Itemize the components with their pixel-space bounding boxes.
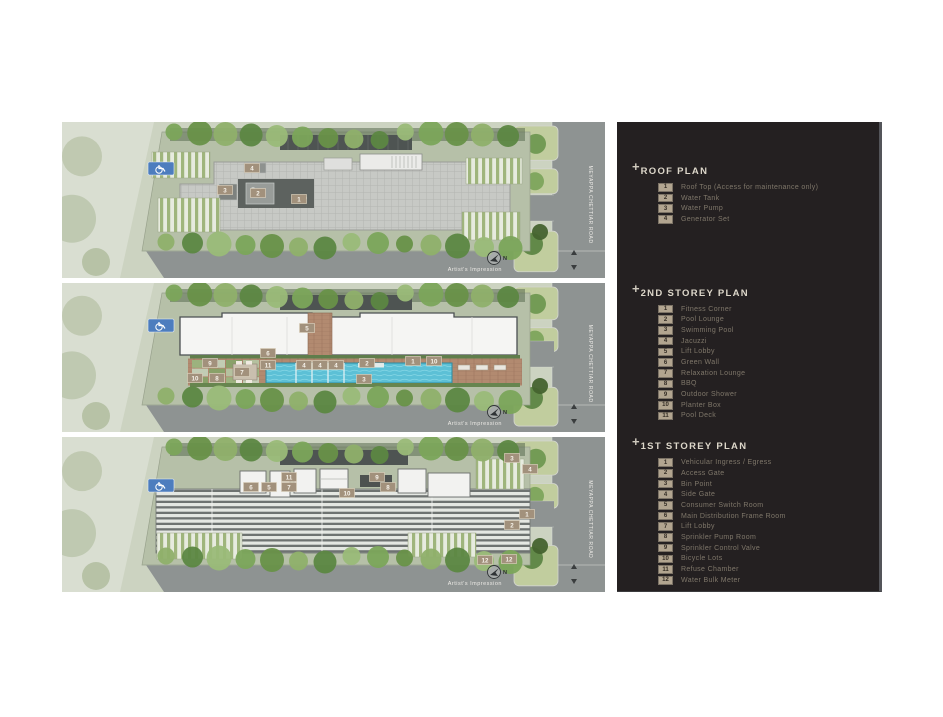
legend-item-number: 3 bbox=[658, 204, 673, 213]
second-storey-plan-figure: 56119108744423110MEYAPPA CHETTIAR ROADNA… bbox=[62, 283, 605, 432]
plan-marker-7: 7 bbox=[235, 368, 250, 377]
legend-item: 1Fitness Corner bbox=[658, 304, 871, 315]
legend-item-label: Roof Top (Access for maintenance only) bbox=[681, 184, 818, 191]
plan-marker-4: 4 bbox=[523, 465, 538, 474]
compass-north-label: N bbox=[503, 570, 507, 576]
legend-item-label: Planter Box bbox=[681, 402, 721, 409]
plan-marker-3: 3 bbox=[218, 186, 233, 195]
plan-marker-12: 12 bbox=[502, 555, 517, 564]
legend-item-label: Bin Point bbox=[681, 481, 712, 488]
legend-section-0: +ROOF PLAN1Roof Top (Access for maintena… bbox=[645, 166, 871, 225]
svg-text:11: 11 bbox=[265, 362, 272, 369]
legend-item: 4Side Gate bbox=[658, 489, 871, 500]
legend-item-number: 4 bbox=[658, 215, 673, 224]
plan-marker-4: 4 bbox=[297, 361, 312, 370]
roof-plan-figure: 4321MEYAPPA CHETTIAR ROADNArtist's Impre… bbox=[62, 122, 605, 278]
legend-item-number: 2 bbox=[658, 469, 673, 478]
legend-item-label: Generator Set bbox=[681, 216, 730, 223]
legend-item-number: 8 bbox=[658, 533, 673, 542]
plan-marker-10: 10 bbox=[427, 357, 442, 366]
artists-impression-label: Artist's Impression bbox=[448, 421, 502, 427]
svg-text:7: 7 bbox=[287, 484, 291, 491]
legend-item-number: 1 bbox=[658, 305, 673, 314]
legend-item-label: Pool Lounge bbox=[681, 316, 724, 323]
legend-item-label: Consumer Switch Room bbox=[681, 502, 763, 509]
legend-item-label: Sprinkler Control Valve bbox=[681, 545, 760, 552]
legend-section-2: +1ST STOREY PLAN1Vehicular Ingress / Egr… bbox=[645, 441, 871, 585]
svg-text:1: 1 bbox=[411, 358, 415, 365]
plus-icon: + bbox=[632, 162, 640, 171]
legend-item: 5Lift Lobby bbox=[658, 347, 871, 358]
legend-item: 7Lift Lobby bbox=[658, 521, 871, 532]
legend-item-label: Swimming Pool bbox=[681, 327, 734, 334]
legend-item-number: 3 bbox=[658, 480, 673, 489]
accessible-parking-icon bbox=[148, 319, 174, 332]
legend-item: 9Outdoor Shower bbox=[658, 389, 871, 400]
legend-item-label: Refuse Chamber bbox=[681, 566, 739, 573]
legend-item-label: Pool Deck bbox=[681, 412, 716, 419]
road-label: MEYAPPA CHETTIAR ROAD bbox=[587, 480, 593, 558]
legend-item-number: 4 bbox=[658, 337, 673, 346]
plan-marker-8: 8 bbox=[210, 374, 225, 383]
plan-marker-9: 9 bbox=[370, 473, 385, 482]
svg-text:3: 3 bbox=[223, 187, 227, 194]
accessible-parking-icon bbox=[148, 162, 174, 175]
legend-item-number: 11 bbox=[658, 412, 673, 421]
plan-marker-12: 12 bbox=[478, 556, 493, 565]
legend-item-label: Water Bulk Meter bbox=[681, 577, 740, 584]
svg-text:1: 1 bbox=[297, 196, 301, 203]
legend-item-number: 9 bbox=[658, 544, 673, 553]
svg-text:1: 1 bbox=[525, 511, 529, 518]
svg-text:2: 2 bbox=[365, 360, 369, 367]
plan-marker-3: 3 bbox=[357, 375, 372, 384]
legend-item-label: Water Tank bbox=[681, 195, 720, 202]
plan-marker-11: 11 bbox=[261, 361, 276, 370]
svg-text:10: 10 bbox=[192, 375, 199, 382]
legend-item-number: 10 bbox=[658, 555, 673, 564]
svg-text:3: 3 bbox=[510, 455, 514, 462]
legend-item-number: 9 bbox=[658, 390, 673, 399]
svg-text:8: 8 bbox=[215, 375, 219, 382]
legend-section-heading: +ROOF PLAN bbox=[645, 166, 871, 177]
legend-item-number: 3 bbox=[658, 326, 673, 335]
svg-text:7: 7 bbox=[240, 369, 244, 376]
legend-item-label: Lift Lobby bbox=[681, 348, 715, 355]
first-storey-plan-figure: 34116579810121212MEYAPPA CHETTIAR ROADNA… bbox=[62, 437, 605, 592]
legend-item-label: Green Wall bbox=[681, 359, 719, 366]
plan-marker-1: 1 bbox=[520, 510, 535, 519]
legend-item-label: Relaxation Lounge bbox=[681, 370, 745, 377]
svg-text:8: 8 bbox=[386, 484, 390, 491]
legend-item-number: 2 bbox=[658, 194, 673, 203]
plan-marker-6: 6 bbox=[244, 483, 259, 492]
svg-text:12: 12 bbox=[506, 556, 513, 563]
plan-marker-7: 7 bbox=[282, 483, 297, 492]
legend-item-label: Side Gate bbox=[681, 491, 715, 498]
legend-section-1: +2ND STOREY PLAN1Fitness Corner2Pool Lou… bbox=[645, 288, 871, 422]
legend-item: 10Bicycle Lots bbox=[658, 554, 871, 565]
svg-text:6: 6 bbox=[266, 350, 270, 357]
plan-marker-8: 8 bbox=[381, 483, 396, 492]
legend-item: 2Water Tank bbox=[658, 193, 871, 204]
legend-item: 9Sprinkler Control Valve bbox=[658, 543, 871, 554]
legend-item-label: Main Distribution Frame Room bbox=[681, 513, 786, 520]
legend-item-label: Water Pump bbox=[681, 205, 723, 212]
legend-item: 7Relaxation Lounge bbox=[658, 368, 871, 379]
legend-item: 5Consumer Switch Room bbox=[658, 500, 871, 511]
legend-item-number: 8 bbox=[658, 380, 673, 389]
legend-section-heading: +2ND STOREY PLAN bbox=[645, 288, 871, 299]
legend-item: 8BBQ bbox=[658, 379, 871, 390]
legend-item-number: 7 bbox=[658, 369, 673, 378]
legend-item: 2Pool Lounge bbox=[658, 314, 871, 325]
legend-item-label: Vehicular Ingress / Egress bbox=[681, 459, 771, 466]
svg-text:11: 11 bbox=[286, 474, 293, 481]
legend-item-label: Sprinkler Pump Room bbox=[681, 534, 756, 541]
legend-item-number: 1 bbox=[658, 183, 673, 192]
legend-item: 6Green Wall bbox=[658, 357, 871, 368]
compass-north-label: N bbox=[503, 410, 507, 416]
page-canvas: 4321MEYAPPA CHETTIAR ROADNArtist's Impre… bbox=[0, 0, 943, 717]
svg-text:10: 10 bbox=[344, 490, 351, 497]
compass-north-label: N bbox=[503, 256, 507, 262]
legend-item-label: Fitness Corner bbox=[681, 306, 732, 313]
plan-marker-6: 6 bbox=[261, 349, 276, 358]
svg-text:6: 6 bbox=[249, 484, 253, 491]
legend-item-number: 10 bbox=[658, 401, 673, 410]
artists-impression-label: Artist's Impression bbox=[448, 581, 502, 587]
svg-text:4: 4 bbox=[302, 362, 306, 369]
roof-plan-image: 4321MEYAPPA CHETTIAR ROADNArtist's Impre… bbox=[62, 122, 605, 278]
legend-section-heading: +1ST STOREY PLAN bbox=[645, 441, 871, 452]
legend-item: 4Jacuzzi bbox=[658, 336, 871, 347]
svg-text:12: 12 bbox=[482, 557, 489, 564]
legend-item-number: 12 bbox=[658, 576, 673, 585]
legend-item: 3Swimming Pool bbox=[658, 325, 871, 336]
legend-item-number: 5 bbox=[658, 501, 673, 510]
plan-marker-9: 9 bbox=[203, 359, 218, 368]
legend-item: 12Water Bulk Meter bbox=[658, 575, 871, 586]
legend-panel: +ROOF PLAN1Roof Top (Access for maintena… bbox=[617, 122, 882, 592]
plus-icon: + bbox=[632, 284, 640, 293]
plan-marker-4: 4 bbox=[329, 361, 344, 370]
svg-text:3: 3 bbox=[362, 376, 366, 383]
svg-text:5: 5 bbox=[267, 484, 271, 491]
second-storey-plan-image: 56119108744423110MEYAPPA CHETTIAR ROADNA… bbox=[62, 283, 605, 432]
legend-item-label: Jacuzzi bbox=[681, 338, 707, 345]
legend-item-number: 6 bbox=[658, 358, 673, 367]
legend-item-label: Lift Lobby bbox=[681, 523, 715, 530]
legend-item-number: 4 bbox=[658, 490, 673, 499]
svg-text:2: 2 bbox=[510, 522, 514, 529]
plan-marker-2: 2 bbox=[360, 359, 375, 368]
legend-item-number: 2 bbox=[658, 315, 673, 324]
legend-item-list: 1Fitness Corner2Pool Lounge3Swimming Poo… bbox=[658, 304, 871, 422]
plan-marker-5: 5 bbox=[300, 324, 315, 333]
svg-text:2: 2 bbox=[256, 190, 260, 197]
road-label: MEYAPPA CHETTIAR ROAD bbox=[587, 166, 593, 244]
road-label: MEYAPPA CHETTIAR ROAD bbox=[587, 325, 593, 403]
legend-item: 4Generator Set bbox=[658, 214, 871, 225]
plan-marker-1: 1 bbox=[292, 195, 307, 204]
plan-marker-5: 5 bbox=[262, 483, 277, 492]
svg-text:4: 4 bbox=[528, 466, 532, 473]
plan-marker-10: 10 bbox=[188, 374, 203, 383]
legend-item: 11Refuse Chamber bbox=[658, 564, 871, 575]
legend-item: 1Vehicular Ingress / Egress bbox=[658, 457, 871, 468]
svg-text:9: 9 bbox=[375, 474, 379, 481]
legend-item: 6Main Distribution Frame Room bbox=[658, 511, 871, 522]
plan-marker-2: 2 bbox=[505, 521, 520, 530]
legend-item: 3Bin Point bbox=[658, 479, 871, 490]
legend-section-title: 1ST STOREY PLAN bbox=[641, 441, 748, 452]
legend-item-list: 1Vehicular Ingress / Egress2Access Gate3… bbox=[658, 457, 871, 585]
legend-item-label: Outdoor Shower bbox=[681, 391, 737, 398]
svg-text:10: 10 bbox=[431, 358, 438, 365]
accessible-parking-icon bbox=[148, 479, 174, 492]
legend-item: 3Water Pump bbox=[658, 203, 871, 214]
plan-marker-11: 11 bbox=[282, 473, 297, 482]
legend-section-title: 2ND STOREY PLAN bbox=[641, 288, 749, 299]
svg-text:9: 9 bbox=[208, 360, 212, 367]
legend-item-list: 1Roof Top (Access for maintenance only)2… bbox=[658, 182, 871, 225]
legend-item-number: 11 bbox=[658, 565, 673, 574]
svg-text:4: 4 bbox=[334, 362, 338, 369]
legend-item: 2Access Gate bbox=[658, 468, 871, 479]
legend-item-number: 1 bbox=[658, 458, 673, 467]
legend-item: 11Pool Deck bbox=[658, 411, 871, 422]
legend-section-title: ROOF PLAN bbox=[641, 166, 709, 177]
plan-marker-3: 3 bbox=[505, 454, 520, 463]
legend-item: 8Sprinkler Pump Room bbox=[658, 532, 871, 543]
artists-impression-label: Artist's Impression bbox=[448, 267, 502, 273]
legend-item-label: Access Gate bbox=[681, 470, 725, 477]
plan-marker-4: 4 bbox=[313, 361, 328, 370]
svg-text:4: 4 bbox=[250, 165, 254, 172]
legend-item-label: Bicycle Lots bbox=[681, 555, 723, 562]
plan-marker-2: 2 bbox=[251, 189, 266, 198]
svg-text:4: 4 bbox=[318, 362, 322, 369]
plan-marker-10: 10 bbox=[340, 489, 355, 498]
legend-item-label: BBQ bbox=[681, 380, 697, 387]
legend-item-number: 5 bbox=[658, 348, 673, 357]
svg-text:5: 5 bbox=[305, 325, 309, 332]
plus-icon: + bbox=[632, 437, 640, 446]
legend-item-number: 6 bbox=[658, 512, 673, 521]
plan-marker-1: 1 bbox=[406, 357, 421, 366]
legend-item-number: 7 bbox=[658, 522, 673, 531]
first-storey-plan-image: 34116579810121212MEYAPPA CHETTIAR ROADNA… bbox=[62, 437, 605, 592]
legend-item: 10Planter Box bbox=[658, 400, 871, 411]
plan-marker-4: 4 bbox=[245, 164, 260, 173]
legend-item: 1Roof Top (Access for maintenance only) bbox=[658, 182, 871, 193]
